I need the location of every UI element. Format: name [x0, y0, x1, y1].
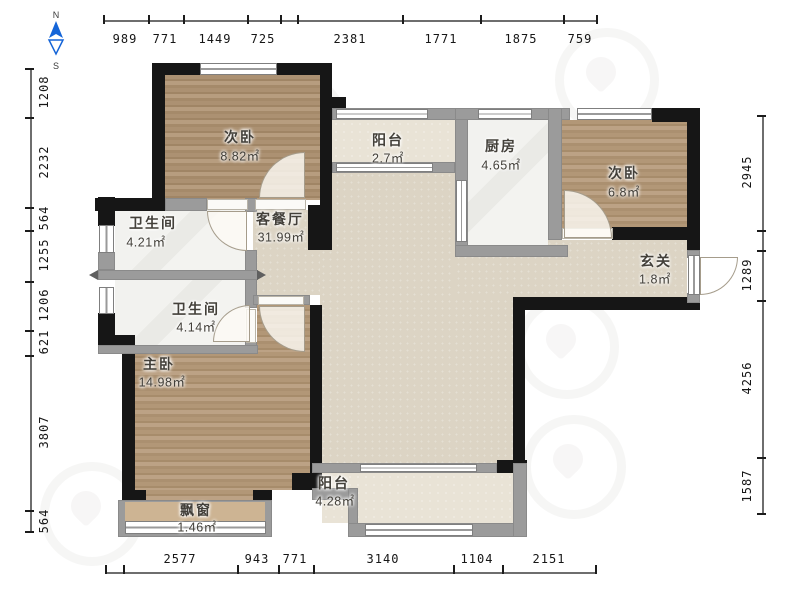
dim-left-1: 2232: [37, 146, 51, 179]
window: [99, 225, 114, 253]
tick: [595, 565, 597, 574]
tick: [25, 281, 34, 283]
dim-bottom-5: 2151: [533, 552, 566, 566]
tick: [25, 330, 34, 332]
room-label-bedroom-ne: 次卧: [608, 163, 640, 183]
sliding-door: [360, 464, 477, 472]
compass: N S: [44, 10, 68, 71]
room-area-bathroom-upper: 4.21㎡: [126, 232, 165, 251]
partition-wall: [98, 270, 258, 280]
room-area-bathroom-lower: 4.14㎡: [176, 317, 215, 336]
dim-left-5: 621: [37, 330, 51, 355]
window: [365, 524, 473, 536]
tick: [297, 15, 299, 24]
wall: [310, 305, 322, 475]
dim-top-6: 1875: [505, 32, 538, 46]
compass-south-label: S: [44, 61, 68, 71]
tick: [105, 565, 107, 574]
partition-wall: [548, 108, 562, 240]
dim-right-1: 1289: [740, 259, 754, 292]
dimension-line-top: [103, 20, 598, 22]
tick: [25, 355, 34, 357]
tick: [25, 207, 34, 209]
dim-bottom-2: 771: [283, 552, 308, 566]
tick: [757, 115, 766, 117]
dim-right-0: 2945: [740, 156, 754, 189]
tick: [25, 230, 34, 232]
compass-north-label: N: [44, 10, 68, 20]
room-area-master: 14.98㎡: [139, 372, 186, 391]
window: [577, 108, 652, 120]
tick: [757, 230, 766, 232]
wall-cap: [257, 270, 266, 280]
tick: [402, 15, 404, 24]
door-arc-entry: [700, 257, 738, 295]
window: [336, 109, 428, 119]
window: [99, 287, 114, 314]
room-area-balcony-south: 4.28㎡: [315, 491, 354, 510]
tick: [278, 565, 280, 574]
wall: [687, 108, 700, 255]
tick: [247, 15, 249, 24]
watermark-logo: [515, 295, 619, 399]
partition-wall: [455, 245, 568, 257]
compass-icon: [44, 20, 68, 56]
dim-left-7: 564: [37, 509, 51, 534]
tick: [480, 15, 482, 24]
wall-cap: [89, 270, 98, 280]
tick: [183, 15, 185, 24]
tick: [237, 565, 239, 574]
partition-wall: [513, 463, 527, 537]
window: [200, 63, 277, 75]
door-opening: [207, 199, 248, 210]
partition-wall: [98, 252, 115, 270]
partition-wall: [98, 345, 258, 354]
door-opening: [258, 296, 304, 305]
room-label-kitchen: 厨房: [485, 136, 517, 156]
dim-top-1: 771: [153, 32, 178, 46]
dim-left-2: 564: [37, 206, 51, 231]
dim-right-3: 1587: [740, 470, 754, 503]
dimension-line-bottom: [105, 572, 597, 574]
dimension-line-left: [30, 68, 32, 533]
dim-top-3: 725: [251, 32, 276, 46]
dim-left-0: 1208: [37, 76, 51, 109]
room-area-entry: 1.8㎡: [639, 269, 671, 288]
wall: [513, 297, 700, 310]
tick: [563, 15, 565, 24]
room-area-living: 31.99㎡: [258, 227, 305, 246]
dim-top-2: 1449: [199, 32, 232, 46]
partition-wall: [165, 198, 207, 211]
dim-top-0: 989: [113, 32, 138, 46]
wall: [98, 313, 115, 337]
room-area-bedroom-ne: 6.8㎡: [608, 182, 640, 201]
tick: [502, 565, 504, 574]
wall: [612, 227, 687, 240]
dim-top-4: 2381: [334, 32, 367, 46]
room-area-bedroom-nw: 8.82㎡: [220, 146, 259, 165]
dim-left-3: 1255: [37, 239, 51, 272]
tick: [25, 117, 34, 119]
dim-bottom-4: 1104: [461, 552, 494, 566]
tick: [757, 300, 766, 302]
dim-top-5: 1771: [425, 32, 458, 46]
tick: [757, 250, 766, 252]
wall: [513, 297, 525, 463]
tick: [25, 531, 34, 533]
dim-bottom-1: 943: [245, 552, 270, 566]
tick: [453, 565, 455, 574]
room-label-bedroom-nw: 次卧: [224, 127, 256, 147]
room-area-bay-window: 1.46㎡: [177, 517, 216, 536]
wall: [308, 205, 320, 250]
dim-left-6: 3807: [37, 416, 51, 449]
room-label-bathroom-upper: 卫生间: [129, 213, 177, 233]
tick: [757, 457, 766, 459]
dimension-line-right: [762, 115, 764, 515]
dim-right-2: 4256: [740, 362, 754, 395]
dim-bottom-3: 3140: [367, 552, 400, 566]
tick: [103, 15, 105, 24]
tick: [25, 68, 34, 70]
wall: [98, 197, 115, 226]
dim-bottom-0: 2577: [164, 552, 197, 566]
dim-left-4: 1206: [37, 289, 51, 322]
watermark-logo: [522, 415, 626, 519]
wall: [152, 75, 165, 211]
entry-door-leaf: [688, 255, 700, 295]
tick: [280, 15, 282, 24]
wall: [320, 63, 332, 250]
wall: [122, 335, 135, 503]
tick: [757, 513, 766, 515]
room-area-kitchen: 4.65㎡: [481, 155, 520, 174]
kitchen-sliding-door: [456, 180, 467, 242]
tick: [313, 565, 315, 574]
tick: [123, 565, 125, 574]
room-area-balcony-north: 2.7㎡: [372, 148, 404, 167]
tick: [148, 15, 150, 24]
dim-top-7: 759: [568, 32, 593, 46]
floor-plan: N S: [0, 0, 800, 600]
tick: [25, 510, 34, 512]
tick: [596, 15, 598, 24]
window: [478, 109, 532, 119]
